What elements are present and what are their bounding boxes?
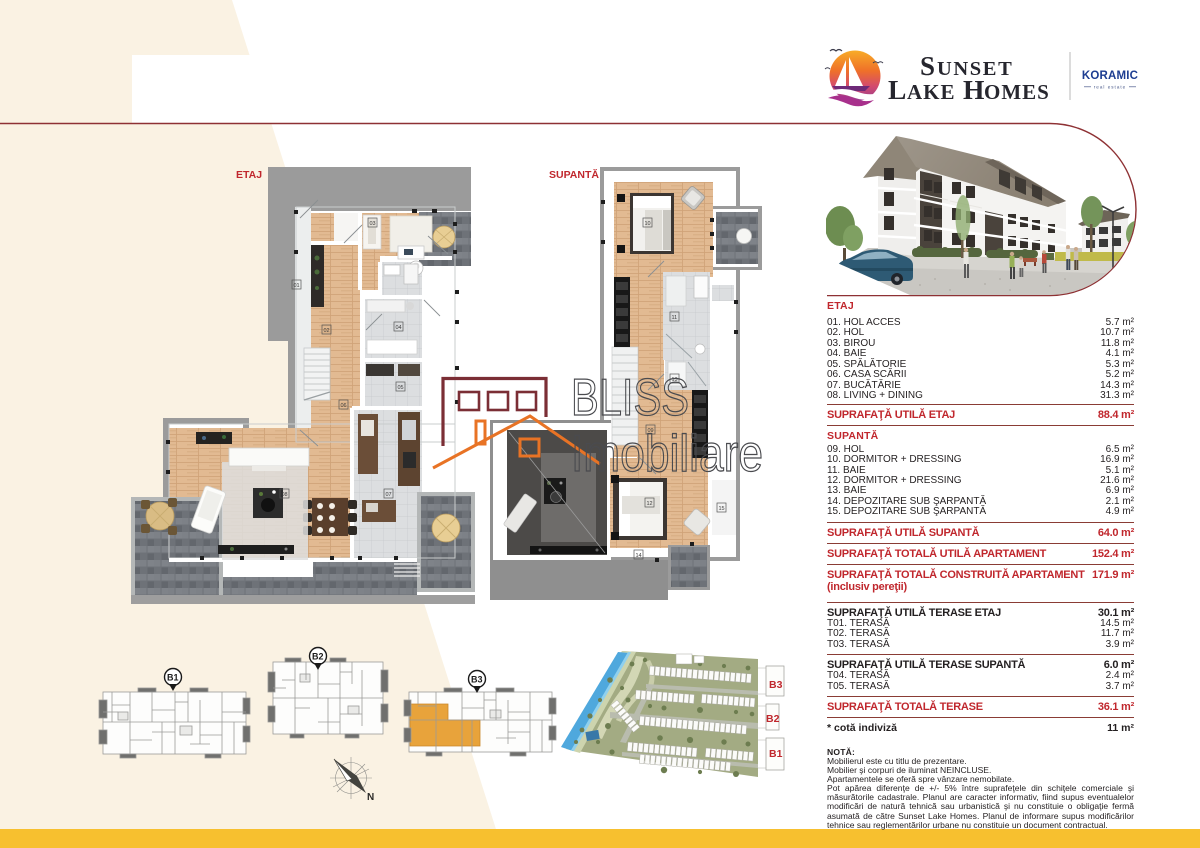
svg-text:H: H xyxy=(963,74,984,105)
svg-text:N: N xyxy=(367,792,374,803)
svg-text:04: 04 xyxy=(396,325,402,331)
svg-text:B2: B2 xyxy=(312,652,324,662)
svg-text:09: 09 xyxy=(648,428,654,434)
svg-text:B3: B3 xyxy=(769,679,783,691)
svg-text:14: 14 xyxy=(636,553,642,559)
svg-text:13: 13 xyxy=(672,377,678,383)
svg-text:S: S xyxy=(920,51,935,81)
svg-text:08: 08 xyxy=(282,492,288,498)
svg-text:06: 06 xyxy=(341,403,347,409)
svg-text:AKE: AKE xyxy=(907,80,956,104)
svg-text:real estate: real estate xyxy=(1094,85,1126,90)
svg-text:10: 10 xyxy=(645,221,651,227)
svg-text:L: L xyxy=(888,74,906,105)
svg-text:B1: B1 xyxy=(167,673,179,683)
svg-text:OMES: OMES xyxy=(984,80,1050,104)
svg-text:03: 03 xyxy=(370,221,376,227)
svg-text:15: 15 xyxy=(719,506,725,512)
svg-text:01: 01 xyxy=(294,283,300,289)
svg-text:B1: B1 xyxy=(769,748,783,760)
svg-text:11: 11 xyxy=(672,315,678,321)
svg-text:05: 05 xyxy=(398,385,404,391)
svg-text:02: 02 xyxy=(324,328,330,334)
svg-text:07: 07 xyxy=(386,492,392,498)
svg-text:12: 12 xyxy=(647,501,653,507)
svg-text:KORAMIC: KORAMIC xyxy=(1082,70,1138,82)
svg-text:B2: B2 xyxy=(766,713,780,725)
svg-text:B3: B3 xyxy=(471,675,483,685)
